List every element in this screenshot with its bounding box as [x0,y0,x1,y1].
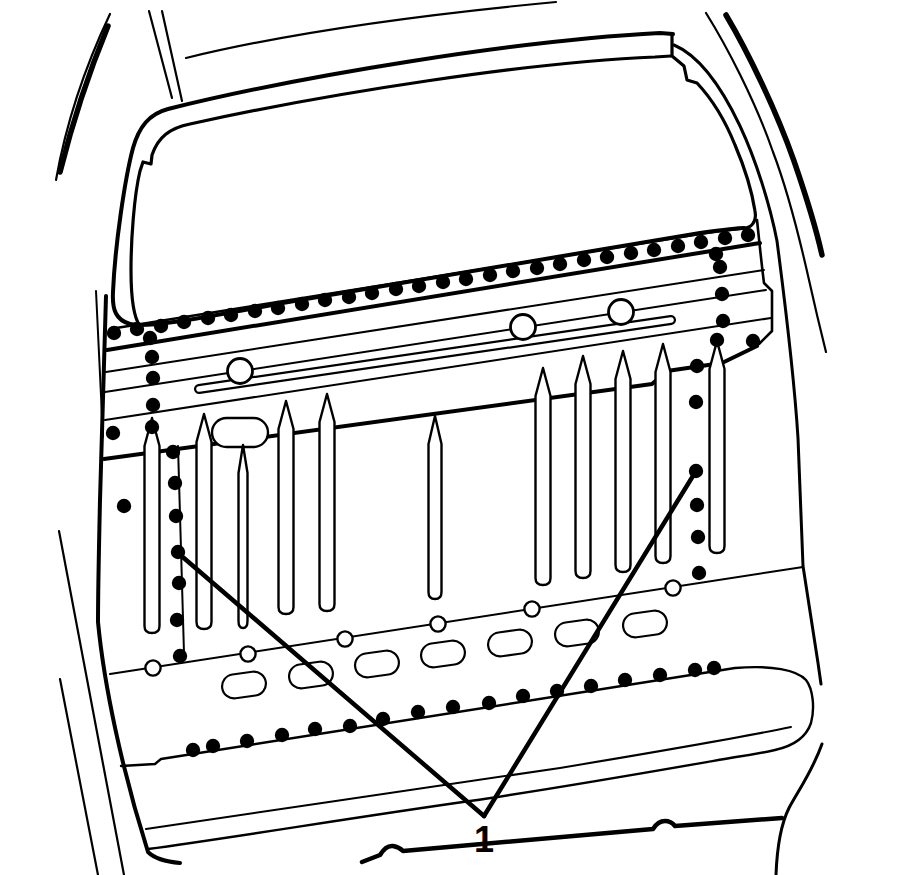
weld-dot-extra [106,426,120,440]
rib [197,414,212,629]
rod-fill [199,320,671,389]
oval-slot [354,649,401,679]
weld-dot-extra [117,499,131,513]
right-inner-notched-edge [757,220,772,344]
rib [616,351,631,572]
weld-dot-top-row [741,228,755,242]
weld-dot-left-column [166,445,180,459]
wheelhouse-s-curve [776,744,822,875]
plug-weld-hole [337,631,352,646]
rib [576,356,591,578]
weld-dot-left-column [145,350,159,364]
rib [239,445,248,628]
weld-dot-lower-row [707,661,721,675]
weld-dot-lower-row [275,728,289,742]
plug-weld-hole [665,580,680,595]
rib [145,418,160,633]
weld-dot-right-column [692,566,706,580]
weld-dot-lower-row [516,689,530,703]
weld-dot-top-row [530,261,544,275]
weld-dot-right-column [713,260,727,274]
weld-dot-top-row [671,239,685,253]
roof-seam-left-2 [162,11,182,101]
right-outer-thin-line [706,13,826,352]
weld-dot-lower-row [343,719,357,733]
access-hole [511,315,536,340]
capsule-slot [212,418,268,447]
rib [429,416,442,599]
roof-seam-left-1 [149,11,172,98]
weld-dot-left-column [170,613,184,627]
weld-dot-right-column [690,498,704,512]
right-outer-thick-stroke [726,15,822,255]
weld-dot-right-column [709,247,723,261]
roof-band-outer-and-sill [113,33,744,325]
weld-dot-lower-row [688,663,702,677]
weld-dot-top-row [577,253,591,267]
rib [279,401,294,614]
weld-dot-top-row [389,282,403,296]
weld-dot-top-row [130,322,144,336]
weld-dot-top-row [624,246,638,260]
left-pillar-thick-arc [60,26,108,172]
weld-dot-top-row [459,272,473,286]
weld-dot-lower-row [206,739,220,753]
weld-dot-right-column [710,333,724,347]
weld-dot-left-column [145,420,159,434]
callout-label-1: 1 [474,819,494,860]
left-lower-diagonal-outer [59,531,124,875]
weld-dot-top-row [295,297,309,311]
left-panel-edge [98,296,180,863]
weld-dot-top-row [600,250,614,264]
weld-dot-right-column [715,287,729,301]
access-hole [609,300,634,325]
weld-dot-right-column [716,314,730,328]
weld-dot-right-column [689,395,703,409]
weld-dot-lower-row [411,705,425,719]
weld-dot-right-column [746,334,760,348]
weld-dot-lower-row [584,679,598,693]
weld-dot-top-row [436,275,450,289]
weld-dot-top-row [718,231,732,245]
oval-slot [622,609,669,639]
capsule-slot [212,418,268,447]
plug-weld-hole [430,616,445,631]
oval-slot [420,639,467,669]
weld-dot-top-row [553,257,567,271]
weld-dot-top-row [365,286,379,300]
weld-dot-lower-row [308,722,322,736]
weld-dot-top-row [342,290,356,304]
weld-dot-top-row [201,311,215,325]
weld-dot-top-row [694,235,708,249]
access-hole [228,359,253,384]
weld-dot-lower-row [482,696,496,710]
weld-dot-top-row [647,243,661,257]
weld-dot-lower-row [653,668,667,682]
weld-dot-lower-row [186,743,200,757]
figure-canvas: 1 [0,0,916,875]
reinforcement-rod [199,320,671,389]
weld-dot-left-column [169,509,183,523]
rib [536,368,551,585]
oval-slot [487,628,534,658]
weld-dot-left-column [173,649,187,663]
weld-dot-left-column [146,398,160,412]
oval-slot [221,670,268,700]
body-panel-weld-diagram: 1 [0,0,916,875]
weld-dot-left-column [146,371,160,385]
weld-dot-top-row [107,326,121,340]
weld-dot-right-column [691,530,705,544]
weld-dot-left-column [172,576,186,590]
weld-dot-lower-row [446,700,460,714]
rib [710,341,725,553]
weld-dot-top-row [271,301,285,315]
floor-thick-line [362,818,782,862]
oval-slot [554,618,601,648]
plug-weld-hole [524,601,539,616]
weld-dot-lower-row [240,734,254,748]
rib [320,394,335,611]
plug-weld-hole [240,646,255,661]
weld-dot-left-column [168,476,182,490]
weld-dot-top-row [248,304,262,318]
plug-weld-hole [145,660,160,675]
weld-dot-top-row [224,308,238,322]
weld-dot-top-row [177,315,191,329]
weld-dot-top-row [483,268,497,282]
weld-dot-left-column [143,331,157,345]
weld-dot-top-row [506,264,520,278]
weld-dot-top-row [154,319,168,333]
weld-dot-right-column [690,359,704,373]
weld-dot-top-row [318,293,332,307]
weld-dot-lower-row [618,673,632,687]
weld-dot-top-row [412,279,426,293]
